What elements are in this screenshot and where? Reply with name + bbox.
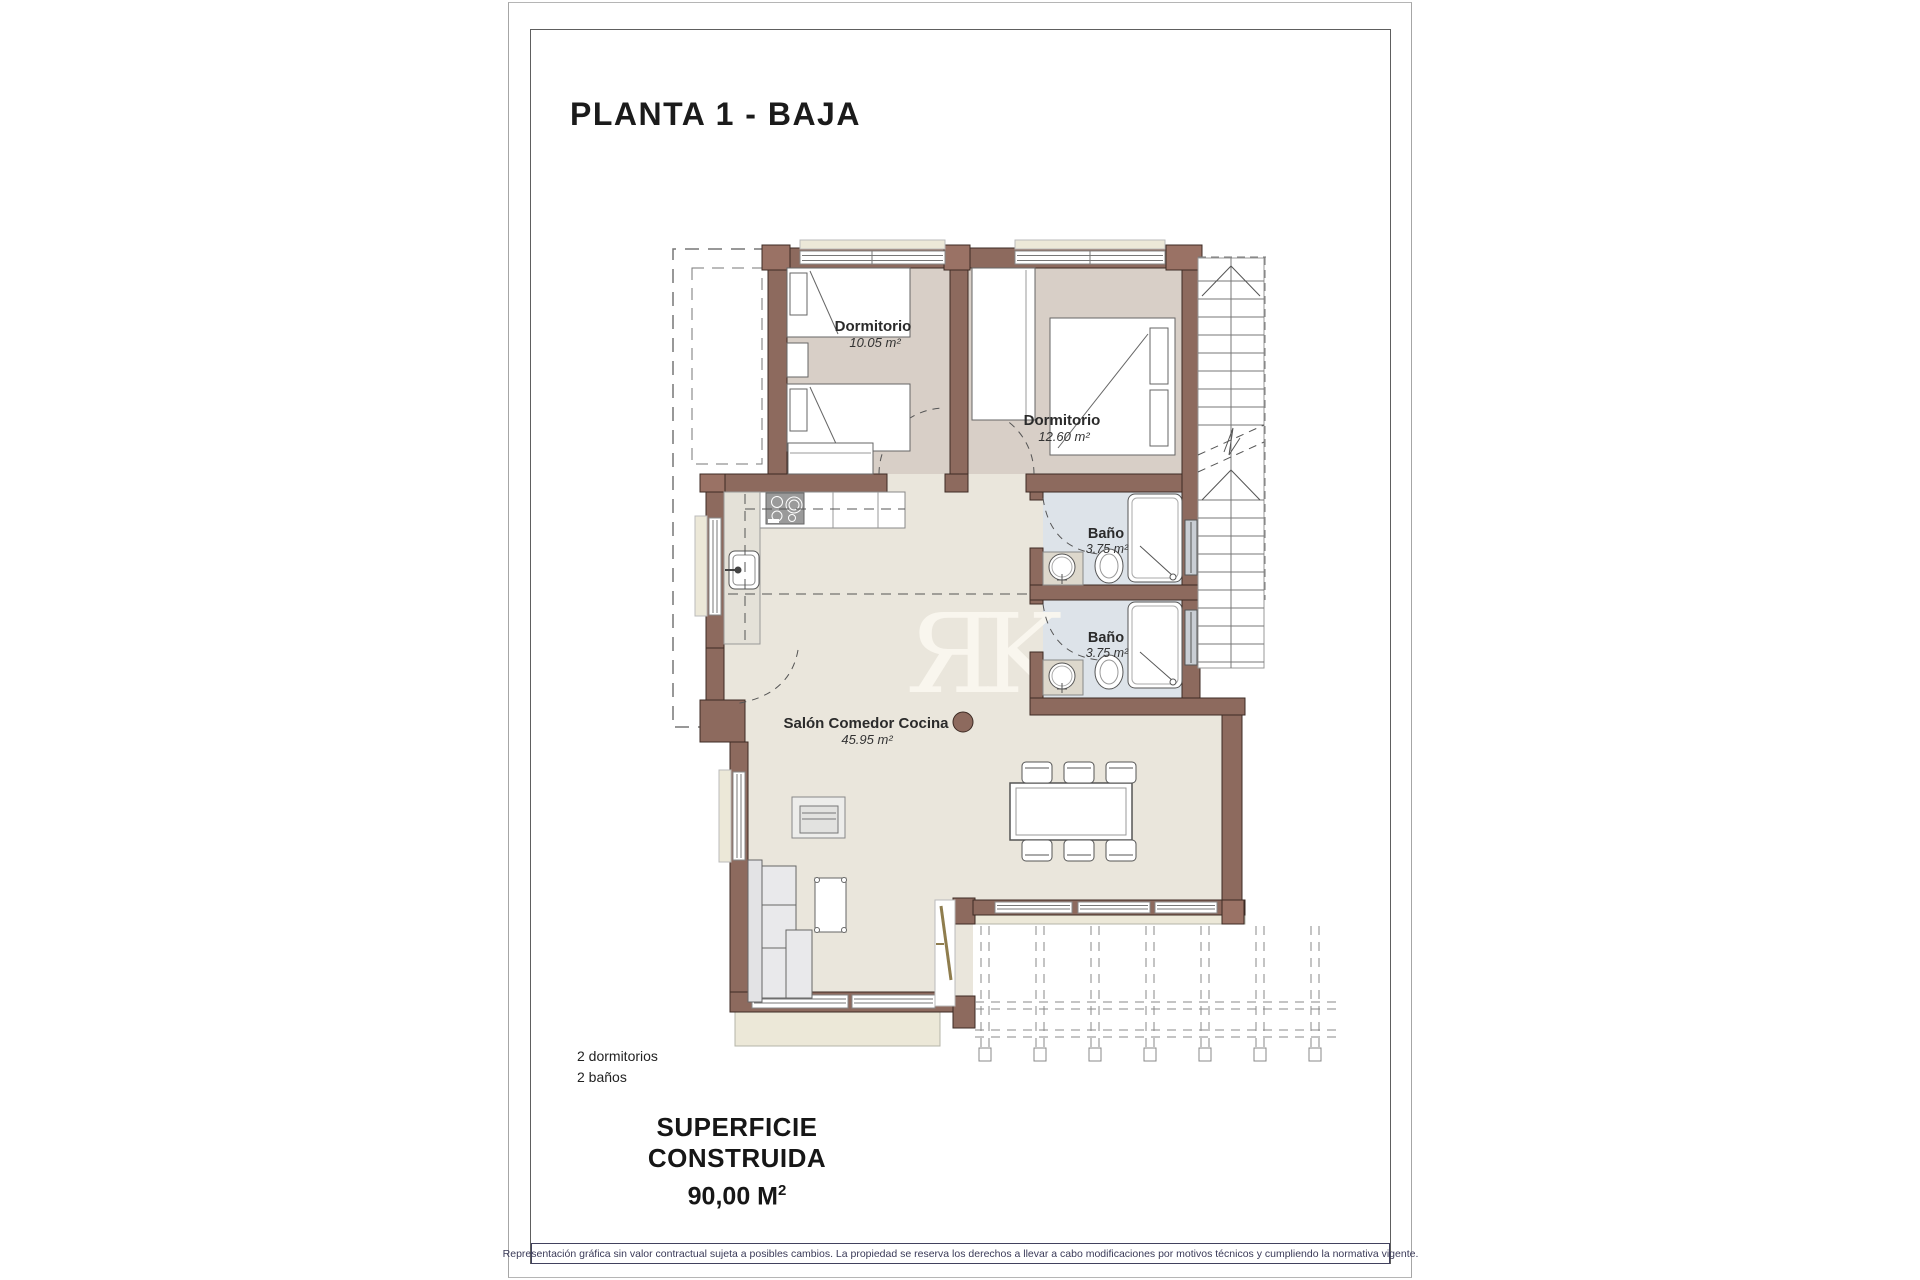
nightstand bbox=[787, 343, 808, 377]
window-living-west bbox=[733, 772, 745, 860]
room-area-bath1: 3.75 m² bbox=[1086, 542, 1129, 556]
window-dining-south-3 bbox=[1155, 902, 1217, 913]
dining-ledge bbox=[973, 915, 1245, 924]
window-sill bbox=[1015, 240, 1165, 249]
window-living-south-2 bbox=[852, 995, 935, 1008]
room-area-bath2: 3.75 m² bbox=[1086, 646, 1129, 660]
room-label-bedroom2: Dormitorio bbox=[1024, 412, 1101, 429]
built-area-number: 90,00 M bbox=[688, 1182, 778, 1210]
disclaimer-bar: Representación gráfica sin valor contrac… bbox=[531, 1243, 1390, 1264]
pillow bbox=[1150, 390, 1168, 446]
coffee-table bbox=[815, 878, 847, 933]
dining-table bbox=[1010, 783, 1132, 840]
built-area-sup: 2 bbox=[778, 1182, 786, 1199]
room-label-bath1: Baño bbox=[1088, 526, 1124, 542]
built-area-value: 90,00 M2 bbox=[575, 1182, 899, 1211]
structural-column bbox=[953, 712, 973, 732]
pillow bbox=[1150, 328, 1168, 384]
disclaimer-text: Representación gráfica sin valor contrac… bbox=[503, 1248, 1419, 1260]
room-area-bedroom2: 12.60 m² bbox=[1038, 429, 1090, 444]
pergola-dashed-grid bbox=[975, 926, 1337, 1061]
summary-bedrooms: 2 dormitorios bbox=[577, 1046, 658, 1067]
floor-plan: ЯK bbox=[0, 0, 1920, 1280]
wardrobe bbox=[788, 443, 873, 474]
sink-icon bbox=[725, 551, 759, 589]
window-sill bbox=[695, 516, 707, 616]
shower-icon bbox=[1128, 494, 1182, 582]
entrance-door bbox=[935, 900, 955, 1006]
pillow bbox=[790, 273, 807, 315]
built-area-label: SUPERFICIE CONSTRUIDA bbox=[575, 1112, 899, 1174]
window-kitchen-west bbox=[709, 518, 721, 615]
south-porch bbox=[735, 1012, 940, 1046]
room-label-bedroom1: Dormitorio bbox=[835, 318, 912, 335]
room-label-living: Salón Comedor Cocina bbox=[783, 715, 949, 732]
window-sill bbox=[719, 770, 731, 862]
summary-block: 2 dormitorios 2 baños bbox=[577, 1046, 658, 1088]
window-dining-south-2 bbox=[1078, 902, 1150, 913]
plan-sheet-canvas: PLANTA 1 - BAJA ЯK bbox=[0, 0, 1920, 1280]
window-dining-south-1 bbox=[995, 902, 1072, 913]
shower-icon bbox=[1128, 602, 1182, 688]
room-label-bath2: Baño bbox=[1088, 630, 1124, 646]
built-area-block: SUPERFICIE CONSTRUIDA 90,00 M2 bbox=[575, 1112, 899, 1211]
room-area-bedroom1: 10.05 m² bbox=[849, 335, 901, 350]
staircase bbox=[1198, 257, 1266, 668]
window-sill bbox=[800, 240, 945, 249]
pillow bbox=[790, 389, 807, 431]
summary-bathrooms: 2 baños bbox=[577, 1067, 658, 1088]
room-area-living: 45.95 m² bbox=[841, 732, 893, 747]
